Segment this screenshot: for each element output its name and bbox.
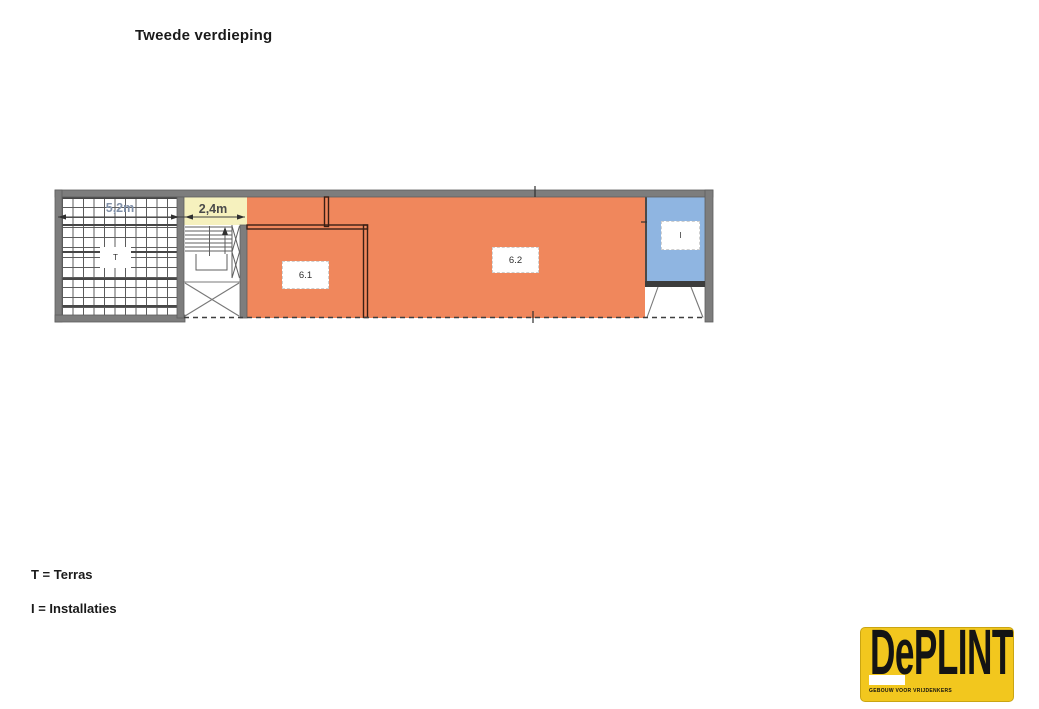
- logo-underline-bar: [869, 675, 905, 685]
- dimension-label-terrace: 5,2m: [85, 201, 155, 215]
- elevator: [184, 282, 240, 316]
- logo-tagline: GEBOUW VOOR VRIJDENKERS: [869, 688, 952, 694]
- page-root: Tweede verdieping: [0, 0, 1039, 709]
- page-title: Tweede verdieping: [135, 27, 272, 44]
- floor-plan: 5,2m 2,4m T 6.1 6.2 I: [55, 190, 713, 322]
- stairs: [185, 225, 240, 278]
- room-label-unit-6-1: 6.1: [282, 261, 329, 289]
- room-label-terrace: T: [100, 247, 131, 268]
- legend-terras: T = Terras: [31, 567, 93, 582]
- dimension-label-stairwell: 2,4m: [188, 202, 238, 216]
- brand-logo: DePLINT GEBOUW VOOR VRIJDENKERS: [860, 627, 1014, 702]
- room-label-installations: I: [661, 221, 700, 250]
- interior-partition-walls: [247, 197, 368, 318]
- legend-installaties: I = Installaties: [31, 601, 117, 616]
- room-label-unit-6-2: 6.2: [492, 247, 539, 273]
- logo-word-plint: PLINT: [914, 627, 1013, 688]
